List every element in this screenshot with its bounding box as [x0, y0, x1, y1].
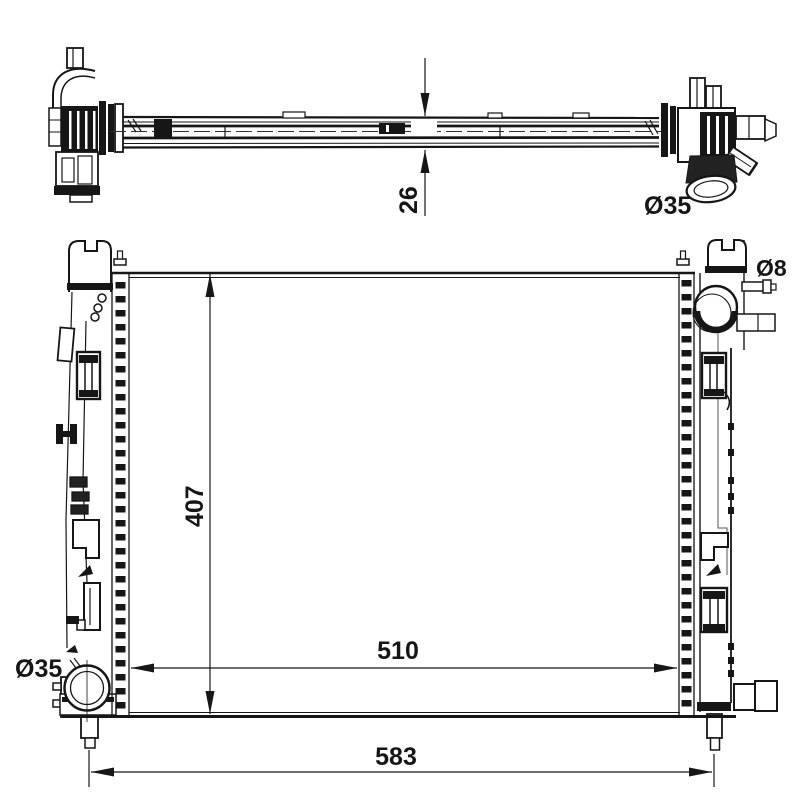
label-bleed-pipe-diameter: Ø8: [756, 255, 787, 281]
label-outlet-diameter-left: Ø35: [15, 655, 62, 683]
dim-height-label: 407: [181, 485, 209, 527]
front-view: 407 510 583 Ø8 Ø35: [15, 240, 787, 787]
front-right-tank: [693, 240, 777, 750]
dimension-height-407: 407: [181, 274, 215, 714]
dim-thickness-label: 26: [395, 186, 423, 214]
dimension-width-510: 510: [131, 637, 677, 673]
front-left-bracket-and-clips: [56, 241, 113, 668]
dimension-width-583: 583: [89, 743, 714, 787]
top-view: 26 Ø35: [49, 48, 776, 220]
top-view-right-fitting: [661, 78, 776, 205]
drawing-canvas: 26 Ø35: [0, 0, 805, 805]
dim-tank-width-label: 510: [377, 637, 419, 665]
label-outlet-diameter-top: Ø35: [644, 192, 691, 220]
dim-overall-width-label: 583: [375, 743, 417, 771]
radiator-technical-drawing: 26 Ø35: [0, 0, 805, 805]
top-view-left-fitting: [49, 48, 123, 202]
top-view-core-bar: [110, 112, 668, 148]
